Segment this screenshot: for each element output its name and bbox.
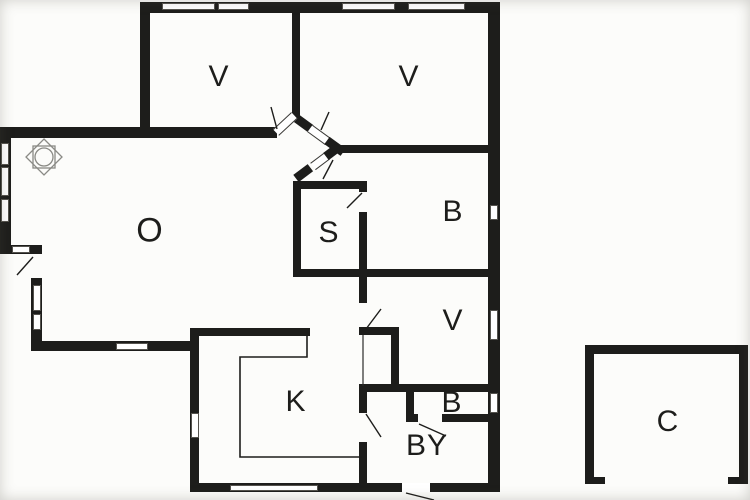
room-label-bedroom-top-left: V — [208, 60, 229, 94]
room-label-toilet: B — [441, 386, 462, 420]
stove-symbol — [26, 139, 62, 175]
room-label-sauna: S — [318, 216, 339, 250]
room-label-kitchen: K — [285, 385, 306, 419]
room-label-bedroom-right: V — [442, 304, 463, 338]
door-swing-lines — [0, 0, 750, 500]
room-label-living-room: O — [136, 212, 163, 251]
room-label-utility-room: BY — [406, 429, 448, 463]
room-label-bathroom: B — [442, 195, 463, 229]
floorplan-canvas: V V B S O V B BY K C — [0, 0, 750, 500]
room-label-carport: C — [657, 405, 680, 439]
room-label-bedroom-top-right: V — [398, 60, 419, 94]
